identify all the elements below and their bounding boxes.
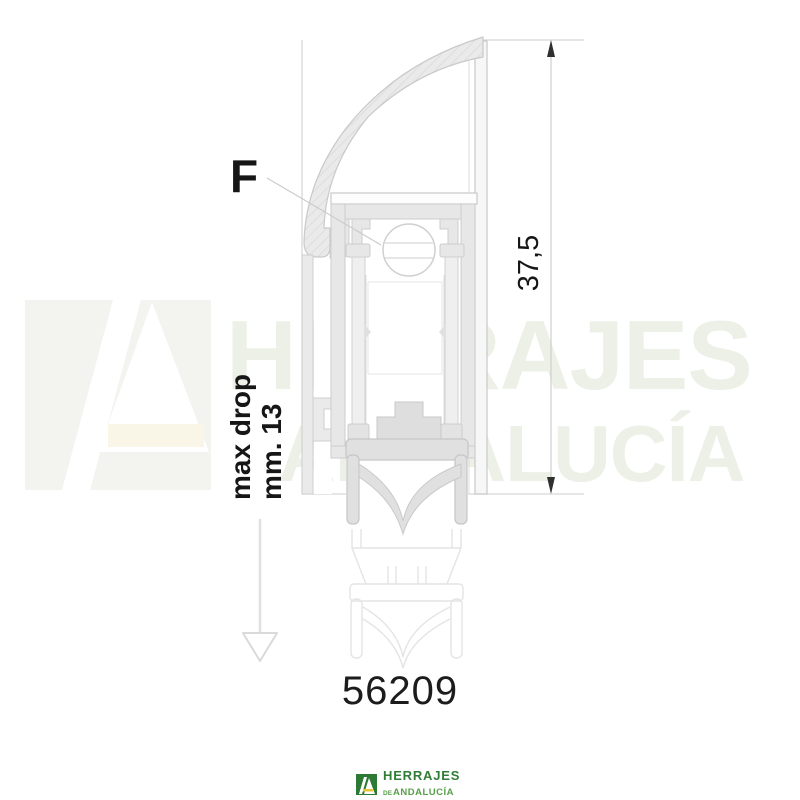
force-label: F <box>230 153 258 199</box>
height-dimension-value: 37,5 <box>515 223 545 303</box>
brand-name: HERRAJES <box>383 769 460 782</box>
dim-arrowhead-bottom-icon <box>547 477 555 494</box>
brand-region: ANDALUCÍA <box>393 787 454 798</box>
dim-arrowhead-top-icon <box>547 40 555 57</box>
max-drop-line1: max drop <box>225 350 256 500</box>
brand-de: DE <box>383 790 392 797</box>
max-drop-note: max drop mm. 13 <box>225 350 287 500</box>
height-dimension-line <box>547 40 555 494</box>
max-drop-line2: mm. 13 <box>256 350 287 500</box>
spring-mechanism-circle <box>383 224 435 276</box>
diagram-page: HERRAJES ANDALUCÍA <box>0 0 800 800</box>
herrajes-logo-icon <box>356 774 377 795</box>
product-code: 56209 <box>300 671 500 711</box>
brand-logo: HERRAJES DEANDALUCÍA <box>356 769 460 799</box>
watermark-a-icon <box>25 300 211 490</box>
ghost-dropped-position <box>350 529 463 668</box>
down-arrow-icon <box>243 519 277 661</box>
